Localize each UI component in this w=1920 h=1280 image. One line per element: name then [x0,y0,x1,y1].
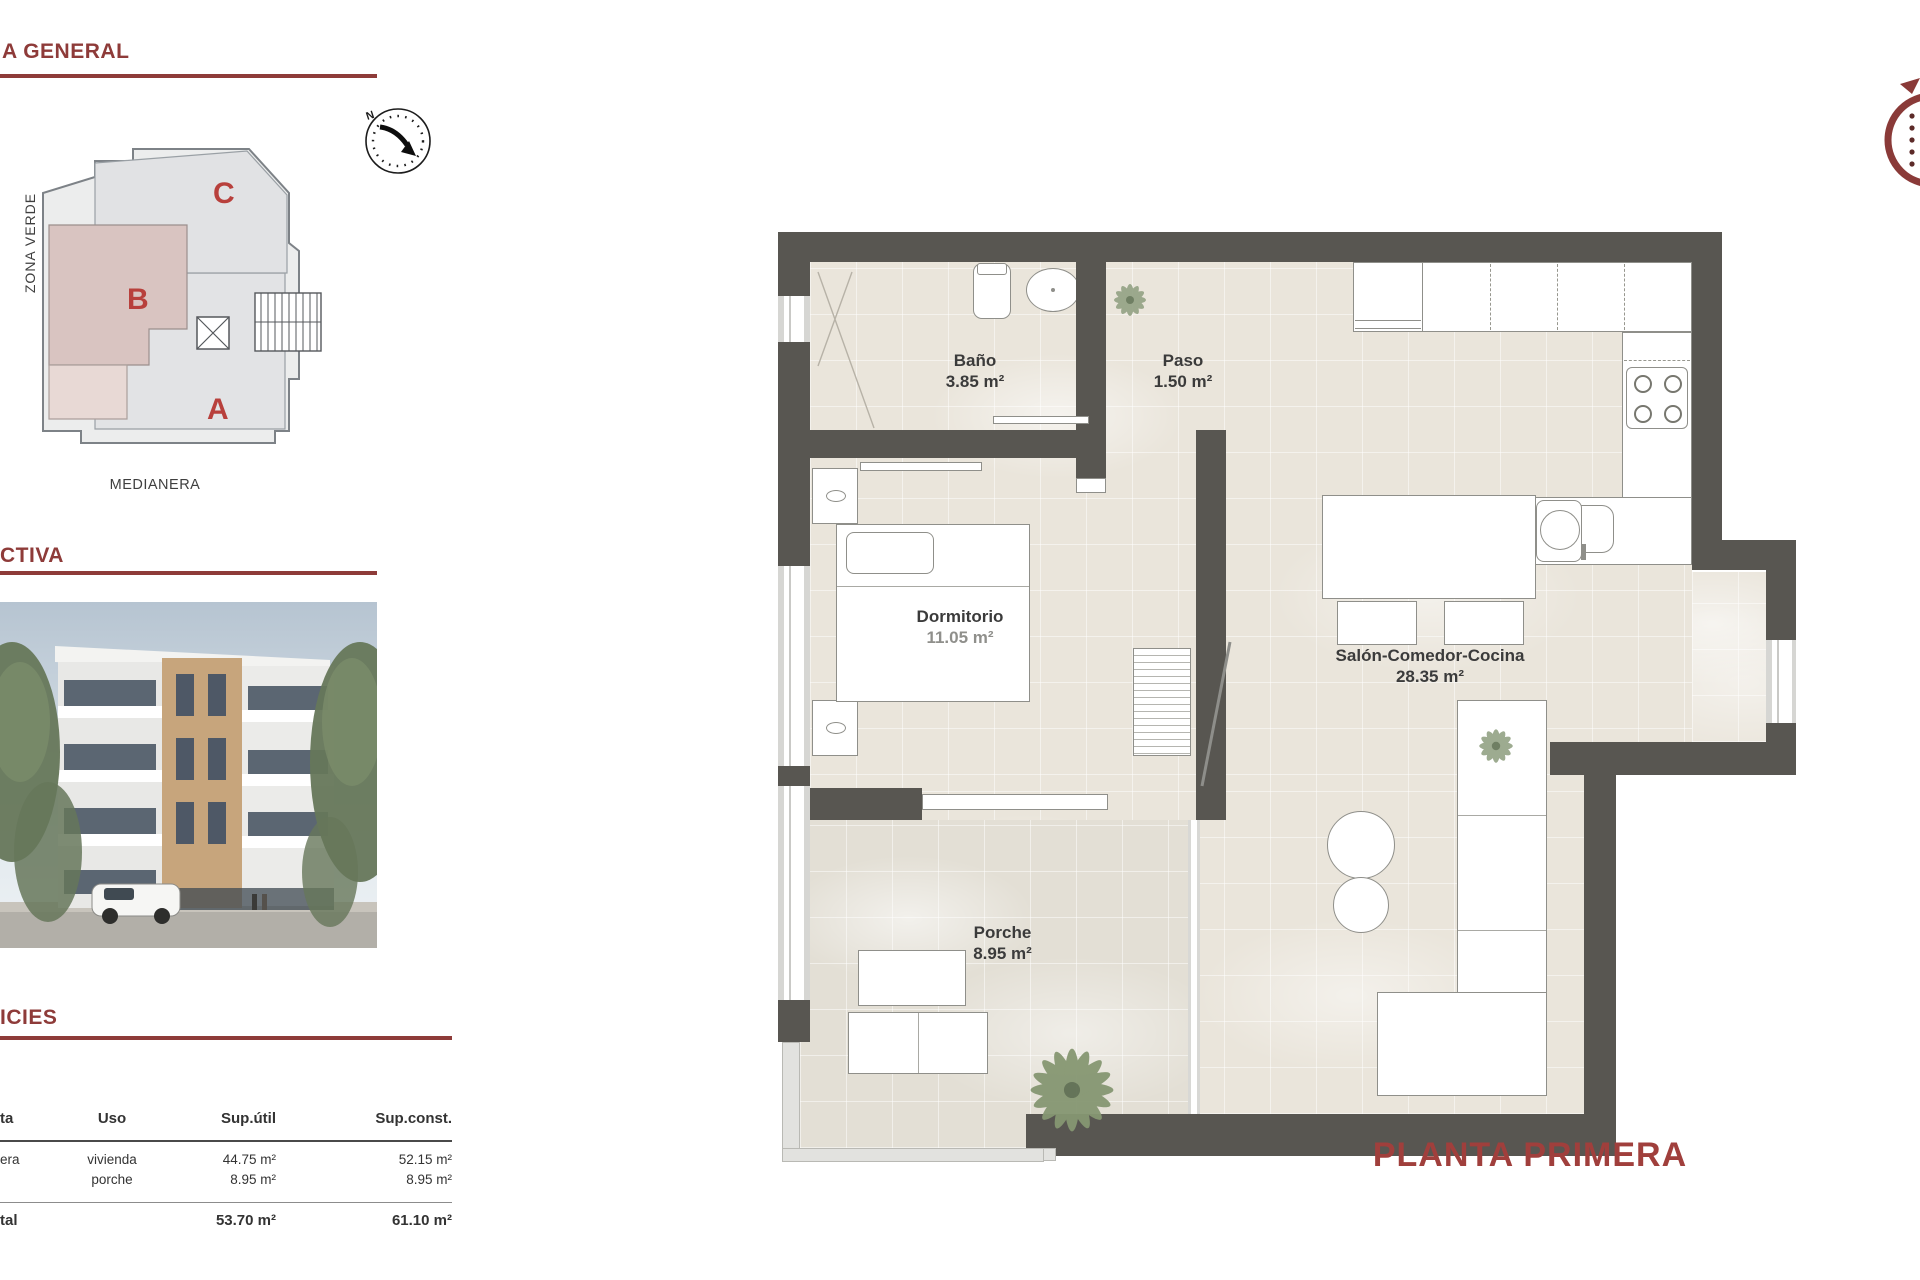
window [778,566,810,766]
dining-island [1322,495,1536,599]
round-table [1333,877,1389,933]
burner [1664,405,1682,423]
site-section-a-label: A [207,393,229,426]
wall [778,766,810,786]
logo-emblem-partial [1874,76,1920,206]
cabinet-shelf-lines [1355,320,1421,329]
sink-drain [1051,288,1055,292]
porche-wall-bottom [782,1148,1044,1162]
col-uso: Uso [72,1110,152,1127]
room-name: Dormitorio [917,607,1004,626]
wall [1550,742,1796,775]
row-uso-2: porche [72,1172,152,1187]
room-label-porche: Porche 8.95 m² [930,922,1075,964]
rule-superficies [0,1036,452,1040]
medianera-label: MEDIANERA [70,477,240,493]
room-name: Paso [1163,351,1204,370]
porche-glass-rail [1188,820,1200,1114]
total-label: tal [0,1212,18,1229]
total-const: 61.10 m² [322,1212,452,1229]
heading-planta-general: A GENERAL [2,40,129,64]
burner [1664,375,1682,393]
room-area: 3.85 m² [905,371,1045,392]
row-util-1: 44.75 m² [176,1152,276,1167]
rule-perspectiva [0,571,377,575]
room-label-salon: Salón-Comedor-Cocina 28.35 m² [1285,645,1575,687]
porche-wall-left [782,1042,800,1162]
site-plan: C B A [37,133,343,465]
sofa-cushion-line [1458,930,1546,931]
sofa-cushion-line [1458,815,1546,816]
row-const-1: 52.15 m² [322,1152,452,1167]
plan-title: PLANTA PRIMERA [1330,1136,1730,1175]
row-const-2: 8.95 m² [322,1172,452,1187]
col-sup-const: Sup.const. [322,1110,452,1127]
room-label-dormitorio: Dormitorio 11.05 m² [880,606,1040,648]
nightstand-knob [826,490,846,502]
compass-icon: N [360,103,434,177]
room-label-paso: Paso 1.50 m² [1113,350,1253,392]
page: A GENERAL C B A [0,0,1920,1280]
bed-blanket-line [837,586,1029,587]
rule-general [0,74,377,78]
room-area: 28.35 m² [1285,666,1575,687]
towel-rail [993,416,1089,424]
sliding-door-dormitorio [922,794,1108,810]
island-basin [1540,510,1580,550]
floor-bump [1692,572,1766,742]
wall [1692,540,1796,570]
sofa-corner [1377,992,1547,1096]
row-util-2: 8.95 m² [176,1172,276,1187]
burner [1634,375,1652,393]
building-render [0,602,377,948]
door-jamb [1076,478,1106,493]
col-planta: ta [0,1110,13,1127]
wall [778,232,1722,262]
room-area: 11.05 m² [880,627,1040,648]
row-planta: era [0,1152,20,1167]
burner [1634,405,1652,423]
wall [1766,570,1796,640]
room-name: Baño [954,351,997,370]
stairs [255,293,321,351]
bench-divider [918,1013,919,1073]
window [1766,640,1796,723]
wall [778,342,810,566]
toilet-tank [977,263,1007,275]
chair [1444,601,1524,645]
site-plan-drawing: C B A [37,133,343,465]
site-section-c-label: C [213,177,235,210]
nightstand-knob [826,722,846,734]
window [778,786,810,1000]
cabinet-divider [1624,264,1625,330]
cabinet-divider [1490,264,1491,330]
room-area: 8.95 m² [930,943,1075,964]
table-header-rule [0,1140,452,1142]
wall-bano-bottom [810,430,1106,458]
site-section-b-annex [49,365,127,419]
wall [778,1000,810,1042]
sliding-door-bano [860,462,982,471]
wall [1692,262,1722,570]
wall [778,262,810,296]
row-uso-1: vivienda [72,1152,152,1167]
col-sup-util: Sup.útil [176,1110,276,1127]
site-section-b-label: B [127,283,149,316]
table-total-rule [0,1202,452,1203]
total-util: 53.70 m² [176,1212,276,1229]
room-area: 1.50 m² [1113,371,1253,392]
room-name: Salón-Comedor-Cocina [1336,646,1525,665]
bed-pillow [846,532,934,574]
room-label-bano: Baño 3.85 m² [905,350,1045,392]
closet-slats [1133,648,1191,756]
chair [1337,601,1417,645]
wall [1584,775,1616,1156]
wall-paso-salon [1196,430,1226,820]
round-table [1327,811,1395,879]
cabinet-divider [1624,360,1690,361]
heading-perspectiva: CTIVA [0,544,64,568]
compass-n: N [365,109,376,123]
heading-superficies: ICIES [0,1006,57,1030]
room-name: Porche [974,923,1032,942]
wall-dormitorio-bottom [810,788,922,820]
window [778,296,810,342]
zona-verde-label: ZONA VERDE [22,183,38,303]
cabinet-divider [1557,264,1558,330]
